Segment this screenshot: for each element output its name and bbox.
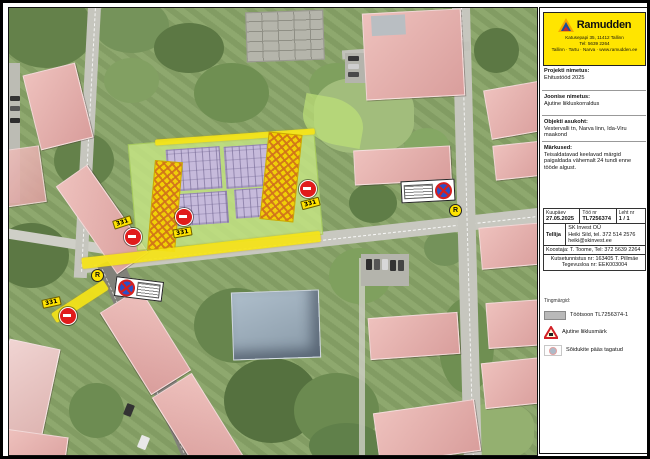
- legend-item-label: Ajutine liiklusmärk: [562, 329, 607, 336]
- no-entry-bar: [179, 215, 187, 218]
- parked-car: [10, 118, 20, 123]
- parked-car: [348, 56, 359, 61]
- date-value: 27.05.2025: [546, 216, 577, 222]
- sign-code-tag: 331: [41, 296, 61, 309]
- building-gray-school: [231, 289, 321, 360]
- no-stopping-icon: [117, 278, 136, 297]
- work-number-value: TL7256374: [582, 216, 613, 222]
- sheet-number-value: 1 / 1: [619, 216, 643, 222]
- no-stopping-icon: [435, 181, 453, 199]
- brand-wordmark: Ramudden: [577, 20, 631, 31]
- sheet-number-cell: Leht nr 1 / 1: [617, 209, 645, 223]
- parked-car: [10, 96, 20, 101]
- building: [373, 399, 481, 456]
- field-object-location: Objekti asukoht: Vestervalli tn, Narva l…: [544, 119, 646, 139]
- table-row: Koostaja: T. Toome, Tel: 372 5639 2264: [544, 246, 645, 255]
- building-roof-section: [371, 14, 406, 36]
- field-project-name: Projekti nimetus: Ehitustööd 2025: [544, 68, 646, 81]
- licence-number: Tegevusloa nr: EEK003004: [546, 262, 643, 268]
- building: [481, 357, 538, 409]
- parked-car: [10, 106, 20, 111]
- table-row: Kutsetunnistus nr: 163405 T. Pillmäe Teg…: [544, 255, 645, 269]
- parked-car: [390, 260, 396, 271]
- field-remarks: Märkused: Teisaldatavad keelavad märgid …: [544, 145, 646, 171]
- no-entry-sign: [299, 180, 317, 198]
- tree: [349, 183, 397, 223]
- field-value: Vestervalli tn, Narva linn, Ida-Viru maa…: [544, 126, 646, 139]
- building-ruins: [245, 10, 325, 63]
- client-email: heiki@skinvest.ee: [568, 238, 643, 244]
- title-block-sidebar: Ramudden Katusepapi 35, 11412 Tallinn Te…: [539, 7, 649, 454]
- access-marker-r: R: [91, 269, 104, 282]
- building: [100, 288, 191, 395]
- access-marker-r: R: [449, 204, 462, 217]
- divider: [542, 141, 646, 142]
- no-entry-sign: [175, 208, 193, 226]
- client-label-cell: Tellija: [544, 224, 566, 245]
- building: [8, 145, 47, 207]
- no-entry-sign: [59, 307, 77, 325]
- tree: [104, 58, 159, 103]
- author-cell: Koostaja: T. Toome, Tel: 372 5639 2264: [544, 246, 645, 254]
- access-sign-icon: [544, 345, 562, 356]
- tree: [474, 28, 519, 73]
- no-entry-bar: [63, 314, 71, 317]
- tree: [69, 383, 124, 438]
- legend-item-label: Töötsoon TL7256374-1: [570, 312, 628, 319]
- client-label: Tellija: [546, 232, 561, 238]
- no-entry-bar: [128, 235, 136, 238]
- legend-item-access: Sõidukite pääs tagatud: [544, 345, 646, 356]
- parked-car: [382, 259, 388, 270]
- building: [492, 140, 538, 180]
- footpath-center: [359, 258, 365, 456]
- building: [485, 299, 538, 349]
- work-zone-swatch: [544, 311, 566, 320]
- ta-plan-sheet: 331 331 331 331 R R Ram: [0, 0, 650, 459]
- parked-car: [348, 64, 359, 69]
- no-entry-bar: [303, 187, 311, 190]
- building: [368, 312, 461, 360]
- field-value: Ehitustööd 2025: [544, 75, 646, 82]
- divider: [542, 115, 646, 116]
- field-value: Teisaldatavad keelavad märgid paigaldada…: [544, 152, 646, 172]
- building: [8, 339, 61, 445]
- certificate-cell: Kutsetunnistus nr: 163405 T. Pillmäe Teg…: [544, 255, 645, 269]
- building: [483, 80, 538, 140]
- aerial-map: 331 331 331 331 R R: [8, 7, 538, 456]
- building: [8, 429, 69, 456]
- parked-car: [348, 72, 359, 77]
- no-stopping-panel: [400, 179, 455, 204]
- building: [478, 222, 538, 269]
- table-row: Tellija SK Invest OÜ Heiki Sild, tel. 37…: [544, 224, 645, 246]
- roadworks-triangle-icon: [544, 326, 558, 339]
- parked-car: [366, 259, 372, 270]
- logo-box: Ramudden Katusepapi 35, 11412 Tallinn Te…: [543, 12, 646, 66]
- parked-car: [374, 259, 380, 270]
- parked-car: [398, 260, 404, 271]
- divider: [542, 90, 646, 91]
- field-drawing-name: Joonise nimetus: Ajutine liikluskorraldu…: [544, 94, 646, 107]
- parked-car: [123, 403, 135, 417]
- ramudden-triangle-icon: [558, 18, 574, 32]
- brand-address-line: Tallinn · Tartu · Narva · www.ramudden.e…: [544, 47, 645, 53]
- field-value: Ajutine liikluskorraldus: [544, 101, 646, 108]
- sign-text-plate: [404, 184, 434, 199]
- building: [22, 63, 93, 151]
- info-table: Kuupäev 27.05.2025 Töö nr TL7256374 Leht…: [543, 208, 646, 271]
- no-entry-sign: [124, 228, 142, 246]
- work-number-cell: Töö nr TL7256374: [580, 209, 616, 223]
- legend-item-label: Sõidukite pääs tagatud: [566, 347, 623, 354]
- table-row: Kuupäev 27.05.2025 Töö nr TL7256374 Leht…: [544, 209, 645, 224]
- building: [362, 8, 465, 100]
- tree: [8, 7, 94, 68]
- client-info-cell: SK Invest OÜ Heiki Sild, tel. 372 514 25…: [566, 224, 645, 245]
- tree: [194, 63, 269, 123]
- legend-item-work-zone: Töötsoon TL7256374-1: [544, 311, 646, 320]
- legend-title: Tingmärgid:: [544, 298, 646, 305]
- date-cell: Kuupäev 27.05.2025: [544, 209, 580, 223]
- parked-car: [137, 435, 150, 450]
- legend: Tingmärgid: Töötsoon TL7256374-1 Ajutine…: [544, 298, 646, 356]
- legend-item-temp-sign: Ajutine liiklusmärk: [544, 326, 646, 339]
- client-contact: Heiki Sild, tel. 372 514 2576: [568, 232, 643, 238]
- sign-text-plate: [136, 282, 161, 299]
